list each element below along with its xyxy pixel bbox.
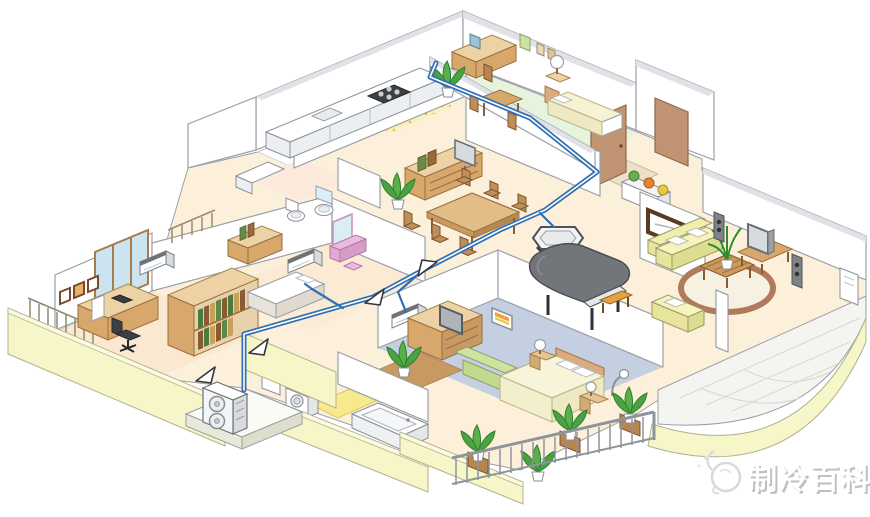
watermark-text: 制冷百科 [748, 462, 870, 496]
watermark: 制冷百科 制冷百科 [697, 451, 870, 498]
isometric-house-illustration: 制冷百科 制冷百科 [0, 0, 870, 517]
floor-unit [840, 268, 858, 305]
penguin-snowflake-icon [697, 451, 740, 493]
living-column [716, 290, 728, 352]
guest-desk-chair [484, 64, 492, 82]
